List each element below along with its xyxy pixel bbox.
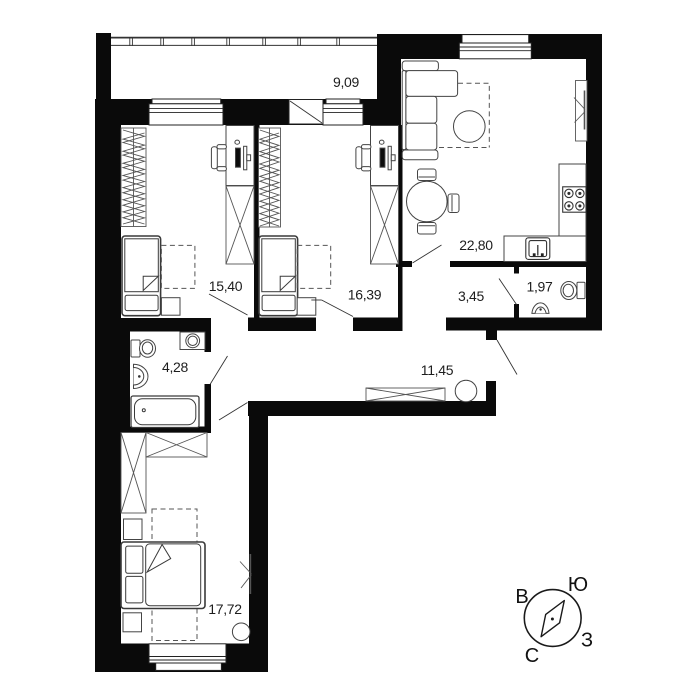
svg-text:15,40: 15,40	[209, 278, 243, 294]
svg-text:Ю: Ю	[568, 574, 588, 596]
svg-text:17,72: 17,72	[208, 601, 242, 617]
svg-text:1,97: 1,97	[526, 279, 553, 295]
svg-text:16,39: 16,39	[348, 287, 382, 303]
svg-text:С: С	[525, 645, 539, 667]
svg-text:3,45: 3,45	[458, 288, 485, 304]
svg-text:9,09: 9,09	[333, 74, 360, 90]
svg-text:11,45: 11,45	[421, 362, 454, 378]
svg-text:З: З	[581, 630, 593, 652]
svg-text:22,80: 22,80	[459, 237, 493, 253]
svg-text:В: В	[515, 586, 528, 608]
svg-text:4,28: 4,28	[162, 359, 189, 375]
